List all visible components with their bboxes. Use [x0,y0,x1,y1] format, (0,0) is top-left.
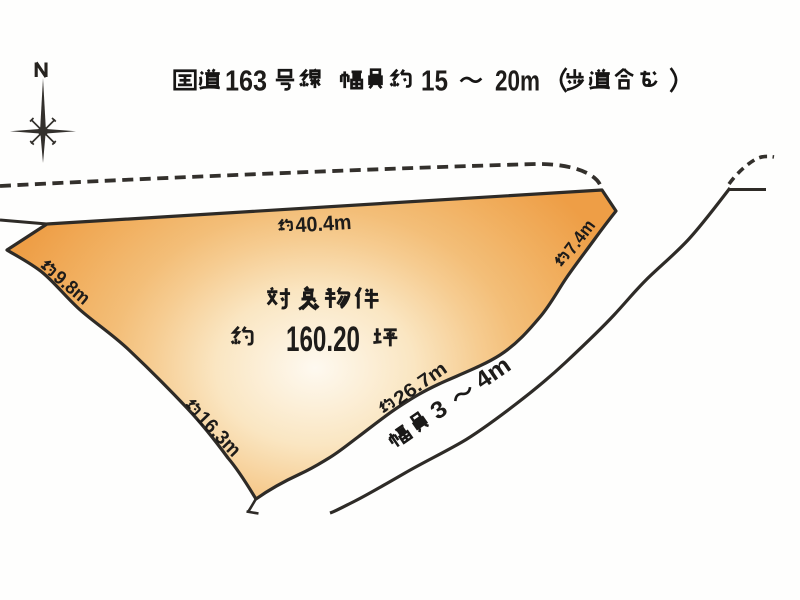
svg-text:15: 15 [421,66,448,98]
svg-text:40.4m: 40.4m [295,211,352,237]
svg-text:163: 163 [225,66,267,98]
svg-text:20m: 20m [495,66,540,98]
svg-text:160.20: 160.20 [286,320,360,359]
